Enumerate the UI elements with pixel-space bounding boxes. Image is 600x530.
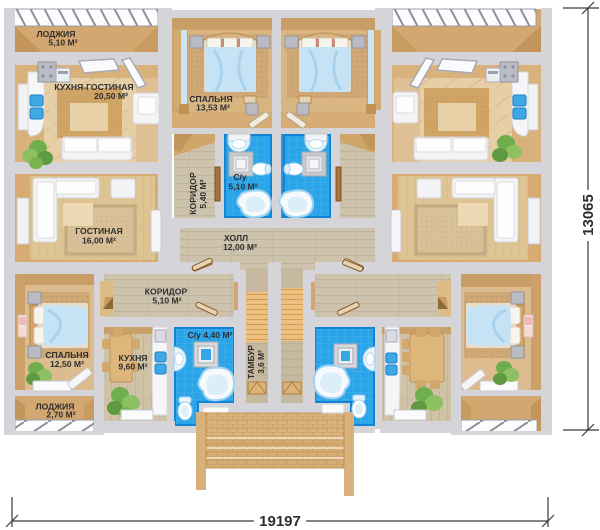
svg-text:КОРИДОР: КОРИДОР	[188, 172, 198, 215]
svg-text:13065: 13065	[580, 194, 597, 236]
svg-text:ГОСТИНАЯ: ГОСТИНАЯ	[75, 226, 122, 236]
svg-text:5,10 М²: 5,10 М²	[152, 296, 181, 306]
svg-text:5,10 М²: 5,10 М²	[48, 38, 77, 48]
svg-text:9,60 М²: 9,60 М²	[118, 362, 147, 372]
svg-text:5,40 М²: 5,40 М²	[198, 179, 208, 208]
svg-text:12,00 М²: 12,00 М²	[223, 242, 257, 252]
svg-text:С/у 4,40 М²: С/у 4,40 М²	[188, 330, 233, 340]
svg-text:12,50 М²: 12,50 М²	[50, 359, 84, 369]
svg-text:5,10 М²: 5,10 М²	[228, 182, 257, 192]
svg-text:3,6 М²: 3,6 М²	[256, 350, 266, 374]
svg-text:С/у: С/у	[233, 172, 247, 182]
svg-text:19197: 19197	[259, 513, 301, 530]
svg-text:2,70 М²: 2,70 М²	[46, 410, 75, 420]
svg-text:ТАМБУР: ТАМБУР	[246, 345, 256, 379]
svg-text:13,53 М²: 13,53 М²	[196, 103, 230, 113]
svg-text:16,00 М²: 16,00 М²	[82, 236, 116, 246]
svg-text:20,50 М²: 20,50 М²	[94, 91, 128, 101]
